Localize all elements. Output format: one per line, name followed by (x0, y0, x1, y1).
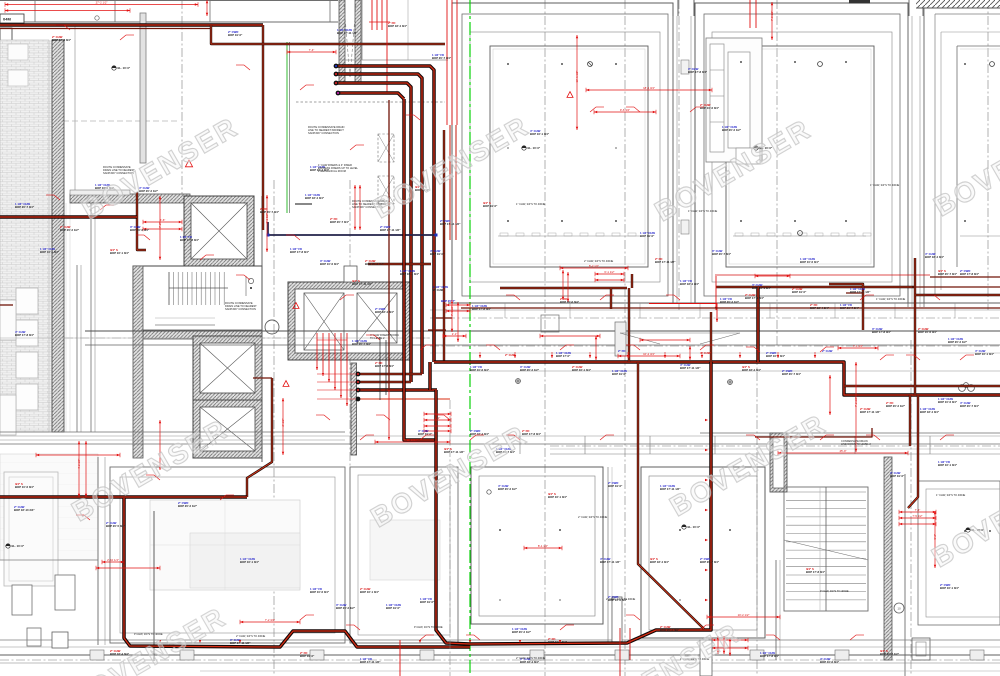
svg-text:LINE DOWN TO LEVEL 2: LINE DOWN TO LEVEL 2 (841, 442, 871, 446)
svg-text:BOP 20'-7 3/4": BOP 20'-7 3/4" (15, 205, 35, 209)
svg-text:BOP 16'-1 3/4": BOP 16'-1 3/4" (360, 590, 380, 594)
svg-text:2" FD: 2" FD (618, 349, 625, 353)
svg-text:2'-10 1/4": 2'-10 1/4" (107, 558, 119, 562)
svg-text:BOP 17'-11 1/2": BOP 17'-11 1/2" (680, 366, 701, 370)
svg-text:BOP 20'-7 3/4": BOP 20'-7 3/4" (352, 342, 372, 346)
svg-text:2" CHW: 2" CHW (822, 349, 833, 353)
svg-text:7'-2": 7'-2" (158, 222, 162, 228)
svg-text:BOP 10'-6 3/4": BOP 10'-6 3/4" (918, 330, 938, 334)
svg-text:BOP 17'-11 1/2": BOP 17'-11 1/2" (860, 410, 881, 414)
svg-text:BOP 20'-7 3/4": BOP 20'-7 3/4" (960, 404, 980, 408)
svg-text:BOP 17'-8 3/4": BOP 17'-8 3/4" (760, 654, 780, 658)
svg-text:P CHW, 3/4"S TO 4004E: P CHW, 3/4"S TO 4004E (414, 625, 443, 629)
svg-text:BOP 20'-2 1/2": BOP 20'-2 1/2" (60, 228, 80, 232)
svg-text:18'-6 3/4": 18'-6 3/4" (643, 86, 655, 90)
svg-text:4'-2 1/4": 4'-2 1/4" (77, 459, 81, 469)
svg-text:BOP 18'-4 3/4": BOP 18'-4 3/4" (742, 368, 762, 372)
svg-text:BOP 20'-2 1/2": BOP 20'-2 1/2" (178, 504, 198, 508)
svg-text:BOP 10'-6 3/4": BOP 10'-6 3/4" (470, 368, 490, 372)
svg-text:BOP 20'-2 1/2": BOP 20'-2 1/2" (722, 128, 742, 132)
svg-text:7'-1 3/4": 7'-1 3/4" (853, 344, 863, 348)
svg-text:45'-9": 45'-9" (839, 449, 846, 453)
svg-text:BOP 16'-1 3/4": BOP 16'-1 3/4" (938, 463, 958, 467)
svg-text:BOP 20'-7 3/4": BOP 20'-7 3/4" (700, 560, 720, 564)
svg-text:BOP 18'-4 3/4": BOP 18'-4 3/4" (388, 24, 408, 28)
svg-text:BOP 19'-0": BOP 19'-0" (420, 600, 435, 604)
svg-text:04M: 04M (3, 17, 11, 22)
svg-text:BOP 20'-2 1/2": BOP 20'-2 1/2" (886, 404, 906, 408)
svg-text:BOP 18'-4 3/4": BOP 18'-4 3/4" (305, 196, 325, 200)
svg-text:BOP 20'-7 3/4": BOP 20'-7 3/4" (260, 210, 280, 214)
svg-text:2 MECHANICAL ROOM: 2 MECHANICAL ROOM (318, 169, 346, 173)
svg-text:1" CHW, 3/4"S TO 4004E: 1" CHW, 3/4"S TO 4004E (870, 183, 900, 187)
svg-text:BOP 20'-7": BOP 20'-7" (441, 299, 456, 303)
svg-text:2'-2": 2'-2" (435, 416, 441, 420)
svg-text:BOP 19'-0": BOP 19'-0" (300, 654, 315, 658)
svg-text:BOP 17'-8 3/4": BOP 17'-8 3/4" (290, 250, 310, 254)
svg-text:BOP 17'-11 1/2": BOP 17'-11 1/2" (655, 260, 676, 264)
svg-text:EL. 10'-0": EL. 10'-0" (528, 146, 541, 150)
svg-text:BOP 10'-6 3/4": BOP 10'-6 3/4" (800, 260, 820, 264)
svg-text:BOP 16'-1 3/4": BOP 16'-1 3/4" (240, 560, 260, 564)
svg-text:2" CHW, 3/4"S TO 4004E: 2" CHW, 3/4"S TO 4004E (584, 259, 614, 263)
svg-text:7'-5 1/2": 7'-5 1/2" (912, 514, 922, 518)
svg-text:BOP 20'-2 1/2": BOP 20'-2 1/2" (336, 606, 356, 610)
svg-text:7'-8 1/2": 7'-8 1/2" (770, 11, 774, 21)
svg-text:SANITARY CONNECTION: SANITARY CONNECTION (308, 131, 339, 135)
svg-text:BOP 17'-8 3/4": BOP 17'-8 3/4" (872, 330, 892, 334)
svg-text:BOP 16'-1 3/4": BOP 16'-1 3/4" (548, 640, 568, 644)
svg-text:BOP 20'-5 3/4": BOP 20'-5 3/4" (106, 524, 126, 528)
svg-text:BOP 10'-6 3/4": BOP 10'-6 3/4" (560, 300, 580, 304)
svg-text:EL. 10'-0": EL. 10'-0" (12, 544, 25, 548)
svg-text:2'-1": 2'-1" (452, 332, 458, 336)
svg-text:BOP 17'-8 3/4": BOP 17'-8 3/4" (52, 38, 72, 42)
svg-text:16'-1 1/2": 16'-1 1/2" (575, 71, 579, 83)
svg-text:P CHW, 3/4"S TO 4004E: P CHW, 3/4"S TO 4004E (820, 589, 849, 593)
svg-text:SANITARY CONNECTION: SANITARY CONNECTION (225, 307, 256, 311)
svg-text:BOP 18'-4 3/4": BOP 18'-4 3/4" (925, 255, 945, 259)
svg-text:BOP 20'-2 1/2": BOP 20'-2 1/2" (720, 300, 740, 304)
svg-text:BOP 20'-7 3/4": BOP 20'-7 3/4" (712, 252, 732, 256)
svg-text:BOP 20'-7 3/4": BOP 20'-7 3/4" (432, 56, 452, 60)
svg-text:9'-6 3/4": 9'-6 3/4" (620, 108, 630, 112)
svg-text:7'-4": 7'-4" (309, 48, 315, 52)
svg-text:BOP 19'-0": BOP 19'-0" (608, 484, 623, 488)
svg-text:BOP 10'-6 3/4": BOP 10'-6 3/4" (320, 262, 340, 266)
svg-text:BOP 20'-2 1/2": BOP 20'-2 1/2" (512, 630, 532, 634)
svg-text:4" CHW: 4" CHW (700, 351, 711, 355)
svg-text:BOP 18'-4 3/4": BOP 18'-4 3/4" (520, 660, 540, 664)
svg-text:BOP 20'-7 3/4": BOP 20'-7 3/4" (330, 220, 350, 224)
svg-text:BOP 17'-0": BOP 17'-0" (556, 354, 571, 358)
svg-text:BOP 17'-11 1/2": BOP 17'-11 1/2" (380, 228, 401, 232)
svg-text:BOP 16'-1 3/4": BOP 16'-1 3/4" (940, 586, 960, 590)
svg-text:2'-1 1/2": 2'-1 1/2" (265, 213, 269, 223)
svg-text:BOP 16'-1 3/4": BOP 16'-1 3/4" (572, 368, 592, 372)
svg-text:BOP 10'-6 3/4": BOP 10'-6 3/4" (130, 228, 150, 232)
svg-text:BOP 17'-11 1/2": BOP 17'-11 1/2" (337, 31, 358, 35)
svg-text:BOP 18'-10 3/4": BOP 18'-10 3/4" (14, 508, 35, 512)
svg-text:BOP 17'-8 3/4": BOP 17'-8 3/4" (688, 70, 708, 74)
svg-text:BOP 20'-7 3/4": BOP 20'-7 3/4" (938, 272, 958, 276)
svg-text:BOP 18'-4 3/4": BOP 18'-4 3/4" (810, 306, 830, 310)
svg-text:BOP 17'-8 3/4": BOP 17'-8 3/4" (806, 570, 826, 574)
svg-text:8'-1 1/2": 8'-1 1/2" (538, 544, 548, 548)
svg-text:10'-2 3/4": 10'-2 3/4" (643, 352, 655, 356)
svg-text:BOP 20'-7 3/4": BOP 20'-7 3/4" (782, 372, 802, 376)
svg-text:BOP 19'-0": BOP 19'-0" (483, 204, 498, 208)
svg-text:6'-6": 6'-6" (160, 218, 166, 222)
svg-text:1" CHW, 3/4"S TO 4004E: 1" CHW, 3/4"S TO 4004E (876, 297, 906, 301)
svg-text:BOP 18'-4 3/4": BOP 18'-4 3/4" (375, 310, 395, 314)
svg-text:BOP 18'-4 3/4": BOP 18'-4 3/4" (650, 560, 670, 564)
svg-text:BOP 18'-4 3/4": BOP 18'-4 3/4" (680, 282, 700, 286)
svg-text:BOP 16'-1 3/4": BOP 16'-1 3/4" (40, 250, 60, 254)
svg-text:BOP 17'-11 1/2": BOP 17'-11 1/2" (850, 290, 871, 294)
svg-text:7'-4 1/2": 7'-4 1/2" (450, 306, 454, 316)
svg-text:EL. 10'-0": EL. 10'-0" (688, 525, 701, 529)
svg-text:7'-4": 7'-4" (915, 508, 921, 512)
svg-text:6'-1 1/2": 6'-1 1/2" (604, 270, 614, 274)
svg-text:BOP 17'-8 3/4": BOP 17'-8 3/4" (15, 333, 35, 337)
svg-text:BOP 18'-4 3/4": BOP 18'-4 3/4" (920, 410, 940, 414)
svg-text:BOP 20'-2 1/2": BOP 20'-2 1/2" (498, 487, 518, 491)
svg-text:BOP 17'-8 3/4": BOP 17'-8 3/4" (960, 272, 980, 276)
svg-text:BOP 10'-6 3/4": BOP 10'-6 3/4" (310, 590, 330, 594)
svg-text:2" CHW, 3/4"S TO 4004E: 2" CHW, 3/4"S TO 4004E (606, 597, 636, 601)
svg-text:BOP 16'-1 3/4": BOP 16'-1 3/4" (400, 272, 420, 276)
svg-text:BOP 20'-7 3/4": BOP 20'-7 3/4" (840, 306, 860, 310)
svg-text:10: 10 (897, 607, 901, 611)
svg-text:7'-2 3/4": 7'-2 3/4" (854, 397, 858, 407)
svg-text:BOP 19'-0": BOP 19'-0" (890, 474, 905, 478)
svg-text:BOP 16'-1 3/4": BOP 16'-1 3/4" (548, 495, 568, 499)
svg-text:BOP 20'-7 3/4": BOP 20'-7 3/4" (660, 628, 680, 632)
svg-text:2" CHW, 3/4"S TO 4004E: 2" CHW, 3/4"S TO 4004E (516, 656, 546, 660)
svg-text:BOP 10'-6 3/4": BOP 10'-6 3/4" (15, 485, 35, 489)
svg-text:2'-1/2": 2'-1/2" (281, 419, 285, 427)
svg-text:BOP 20'-2 1/2": BOP 20'-2 1/2" (520, 368, 540, 372)
svg-text:BOP 20'-2 1/2": BOP 20'-2 1/2" (948, 340, 968, 344)
svg-text:BOP 17'-8 3/4": BOP 17'-8 3/4" (472, 307, 492, 311)
svg-text:BOP 20'-2 1/2": BOP 20'-2 1/2" (880, 652, 900, 656)
svg-text:BOP 17'-8 3/4": BOP 17'-8 3/4" (375, 364, 395, 368)
svg-text:BOP 16'-1 3/4": BOP 16'-1 3/4" (752, 286, 772, 290)
svg-text:9'-2": 9'-2" (933, 534, 937, 540)
svg-text:BOP 17'-11 1/2": BOP 17'-11 1/2" (230, 641, 251, 645)
svg-text:BOP 19'-0": BOP 19'-0" (430, 252, 445, 256)
svg-text:2" CHW: 2" CHW (433, 288, 444, 292)
svg-text:BOP 19'-0": BOP 19'-0" (792, 290, 807, 294)
svg-text:BOP 17'-8 3/4": BOP 17'-8 3/4" (180, 238, 200, 242)
svg-text:8'-2 1/2": 8'-2 1/2" (589, 264, 599, 268)
svg-text:BOP 16'-1 3/4": BOP 16'-1 3/4" (975, 352, 995, 356)
svg-text:EL. 10'-0": EL. 10'-0" (118, 66, 131, 70)
svg-text:BOP 17'-11 1/2": BOP 17'-11 1/2" (352, 282, 373, 286)
svg-text:BOP 17'-8 3/4": BOP 17'-8 3/4" (745, 296, 765, 300)
svg-text:2" CHW, 3/4"S TO 4004E: 2" CHW, 3/4"S TO 4004E (578, 515, 608, 519)
svg-text:BOP 19'-0": BOP 19'-0" (228, 33, 243, 37)
svg-text:10'-2 1/2": 10'-2 1/2" (738, 613, 750, 617)
svg-text:BOP 19'-0": BOP 19'-0" (612, 372, 627, 376)
svg-text:BOP 19'-0": BOP 19'-0" (386, 606, 401, 610)
svg-text:7'-2 3/4": 7'-2 3/4" (265, 618, 275, 622)
svg-text:BOP 17'-11 1/2": BOP 17'-11 1/2" (360, 660, 381, 664)
svg-text:1" CHW, 3/4"S TO 4004E: 1" CHW, 3/4"S TO 4004E (936, 493, 966, 497)
svg-text:BOP 20'-2 1/2": BOP 20'-2 1/2" (365, 262, 385, 266)
svg-text:BOP 17'-11 1/2": BOP 17'-11 1/2" (600, 560, 621, 564)
svg-text:BOP 19'-0": BOP 19'-0" (640, 234, 655, 238)
svg-text:BOP 10'-6 3/4": BOP 10'-6 3/4" (938, 400, 958, 404)
svg-text:BOP 10'-6 3/4": BOP 10'-6 3/4" (820, 660, 840, 664)
svg-text:BOP 16'-1 3/4": BOP 16'-1 3/4" (110, 251, 130, 255)
svg-text:BOP 16'-1 3/4": BOP 16'-1 3/4" (766, 354, 786, 358)
svg-text:11'-2 3/4": 11'-2 3/4" (407, 438, 419, 442)
svg-text:1" CHW, 3/4"S TO 4004E: 1" CHW, 3/4"S TO 4004E (516, 202, 546, 206)
svg-text:2" CHW, 3/4"S TO 4004E: 2" CHW, 3/4"S TO 4004E (236, 634, 266, 638)
svg-text:BOP 17'-11 1/2": BOP 17'-11 1/2" (440, 222, 461, 226)
svg-text:27'-2 1/2": 27'-2 1/2" (96, 0, 108, 4)
